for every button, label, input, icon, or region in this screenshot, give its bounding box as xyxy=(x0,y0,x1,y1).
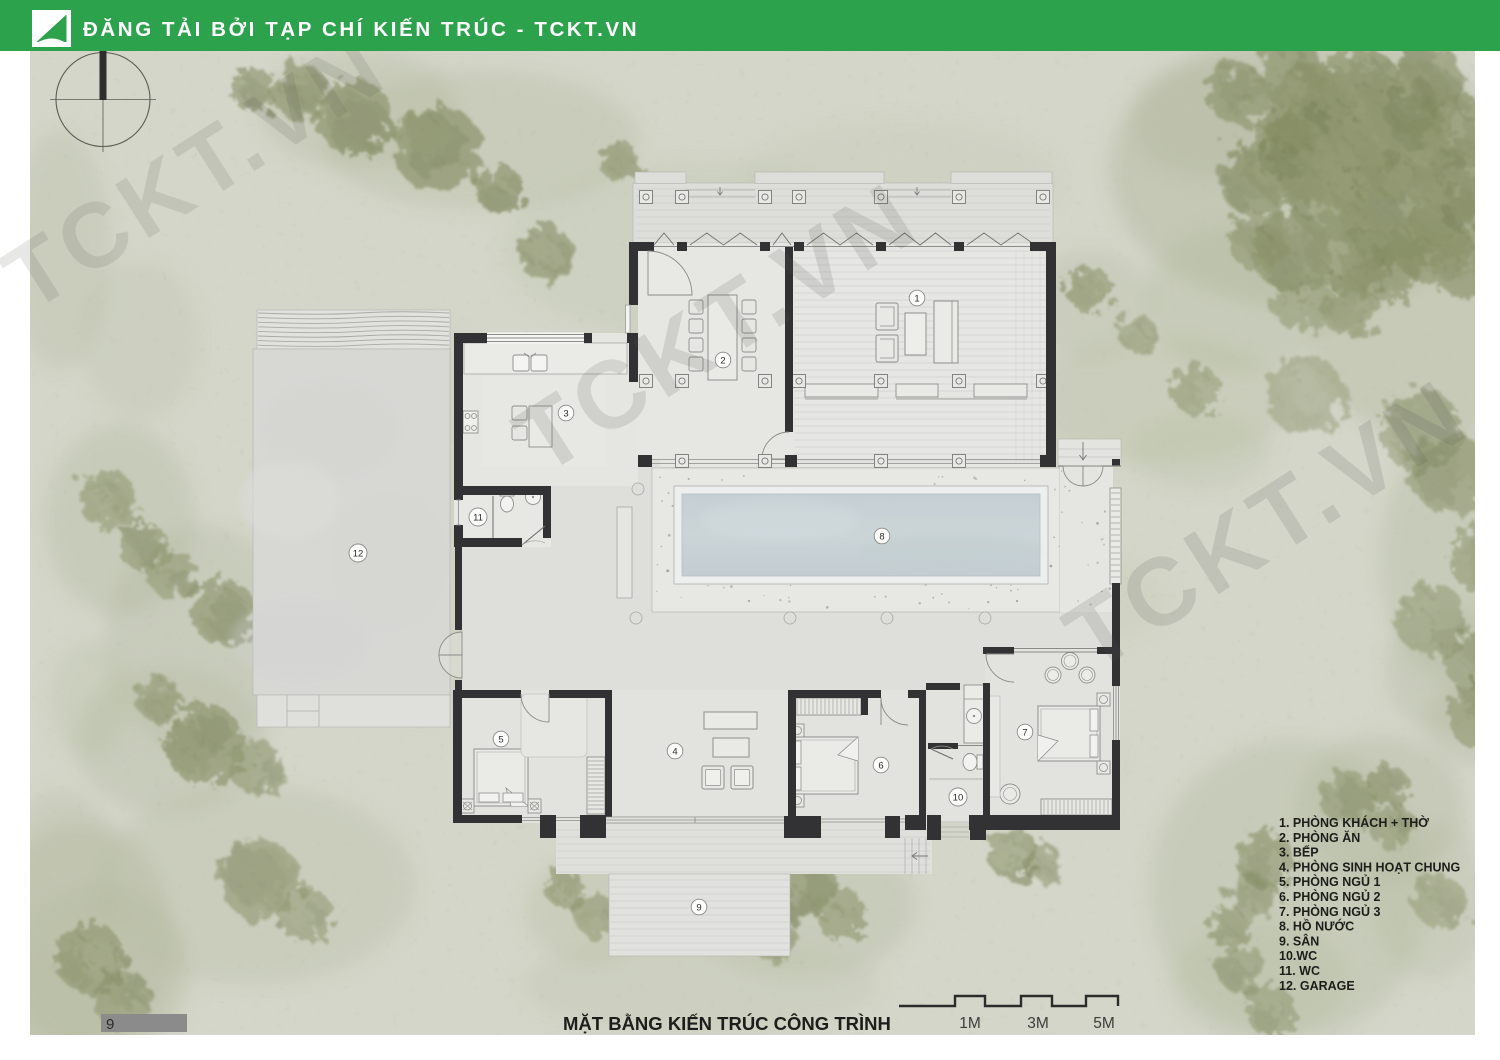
svg-text:5. PHÒNG NGỦ 1: 5. PHÒNG NGỦ 1 xyxy=(1279,874,1380,889)
svg-text:3: 3 xyxy=(563,408,568,419)
svg-text:9: 9 xyxy=(106,1016,114,1033)
svg-text:9: 9 xyxy=(696,902,701,913)
svg-text:1. PHÒNG KHÁCH + THỜ: 1. PHÒNG KHÁCH + THỜ xyxy=(1279,815,1429,830)
svg-text:4: 4 xyxy=(672,746,677,757)
svg-text:12: 12 xyxy=(353,548,364,559)
svg-text:ĐĂNG TẢI BỞI TẠP CHÍ KIẾN TRÚC: ĐĂNG TẢI BỞI TẠP CHÍ KIẾN TRÚC - TCKT.VN xyxy=(83,17,639,41)
svg-text:10: 10 xyxy=(953,792,964,803)
svg-text:5: 5 xyxy=(498,734,503,745)
svg-text:11: 11 xyxy=(473,512,483,523)
svg-text:11. WC: 11. WC xyxy=(1279,964,1320,978)
svg-text:1M: 1M xyxy=(959,1015,981,1032)
svg-text:7: 7 xyxy=(1022,727,1027,738)
svg-text:6. PHÒNG NGỦ 2: 6. PHÒNG NGỦ 2 xyxy=(1279,889,1380,904)
svg-text:1: 1 xyxy=(914,293,919,304)
svg-text:5M: 5M xyxy=(1093,1015,1115,1032)
svg-text:6: 6 xyxy=(878,760,883,771)
svg-text:12. GARAGE: 12. GARAGE xyxy=(1279,979,1355,993)
svg-text:3. BẾP: 3. BẾP xyxy=(1279,845,1319,860)
svg-text:3M: 3M xyxy=(1027,1015,1049,1032)
svg-text:2. PHÒNG ĂN: 2. PHÒNG ĂN xyxy=(1279,830,1360,845)
svg-text:10.WC: 10.WC xyxy=(1279,949,1317,963)
svg-text:8: 8 xyxy=(879,531,884,542)
svg-text:2: 2 xyxy=(720,355,725,366)
svg-text:MẶT BẰNG KIẾN TRÚC CÔNG TRÌNH: MẶT BẰNG KIẾN TRÚC CÔNG TRÌNH xyxy=(563,1013,891,1034)
svg-text:8. HỒ NƯỚC: 8. HỒ NƯỚC xyxy=(1279,919,1354,934)
svg-text:4. PHÒNG SINH HOẠT CHUNG: 4. PHÒNG SINH HOẠT CHUNG xyxy=(1279,859,1460,874)
svg-text:9. SÂN: 9. SÂN xyxy=(1279,933,1319,948)
svg-text:7. PHÒNG NGỦ 3: 7. PHÒNG NGỦ 3 xyxy=(1279,904,1380,919)
